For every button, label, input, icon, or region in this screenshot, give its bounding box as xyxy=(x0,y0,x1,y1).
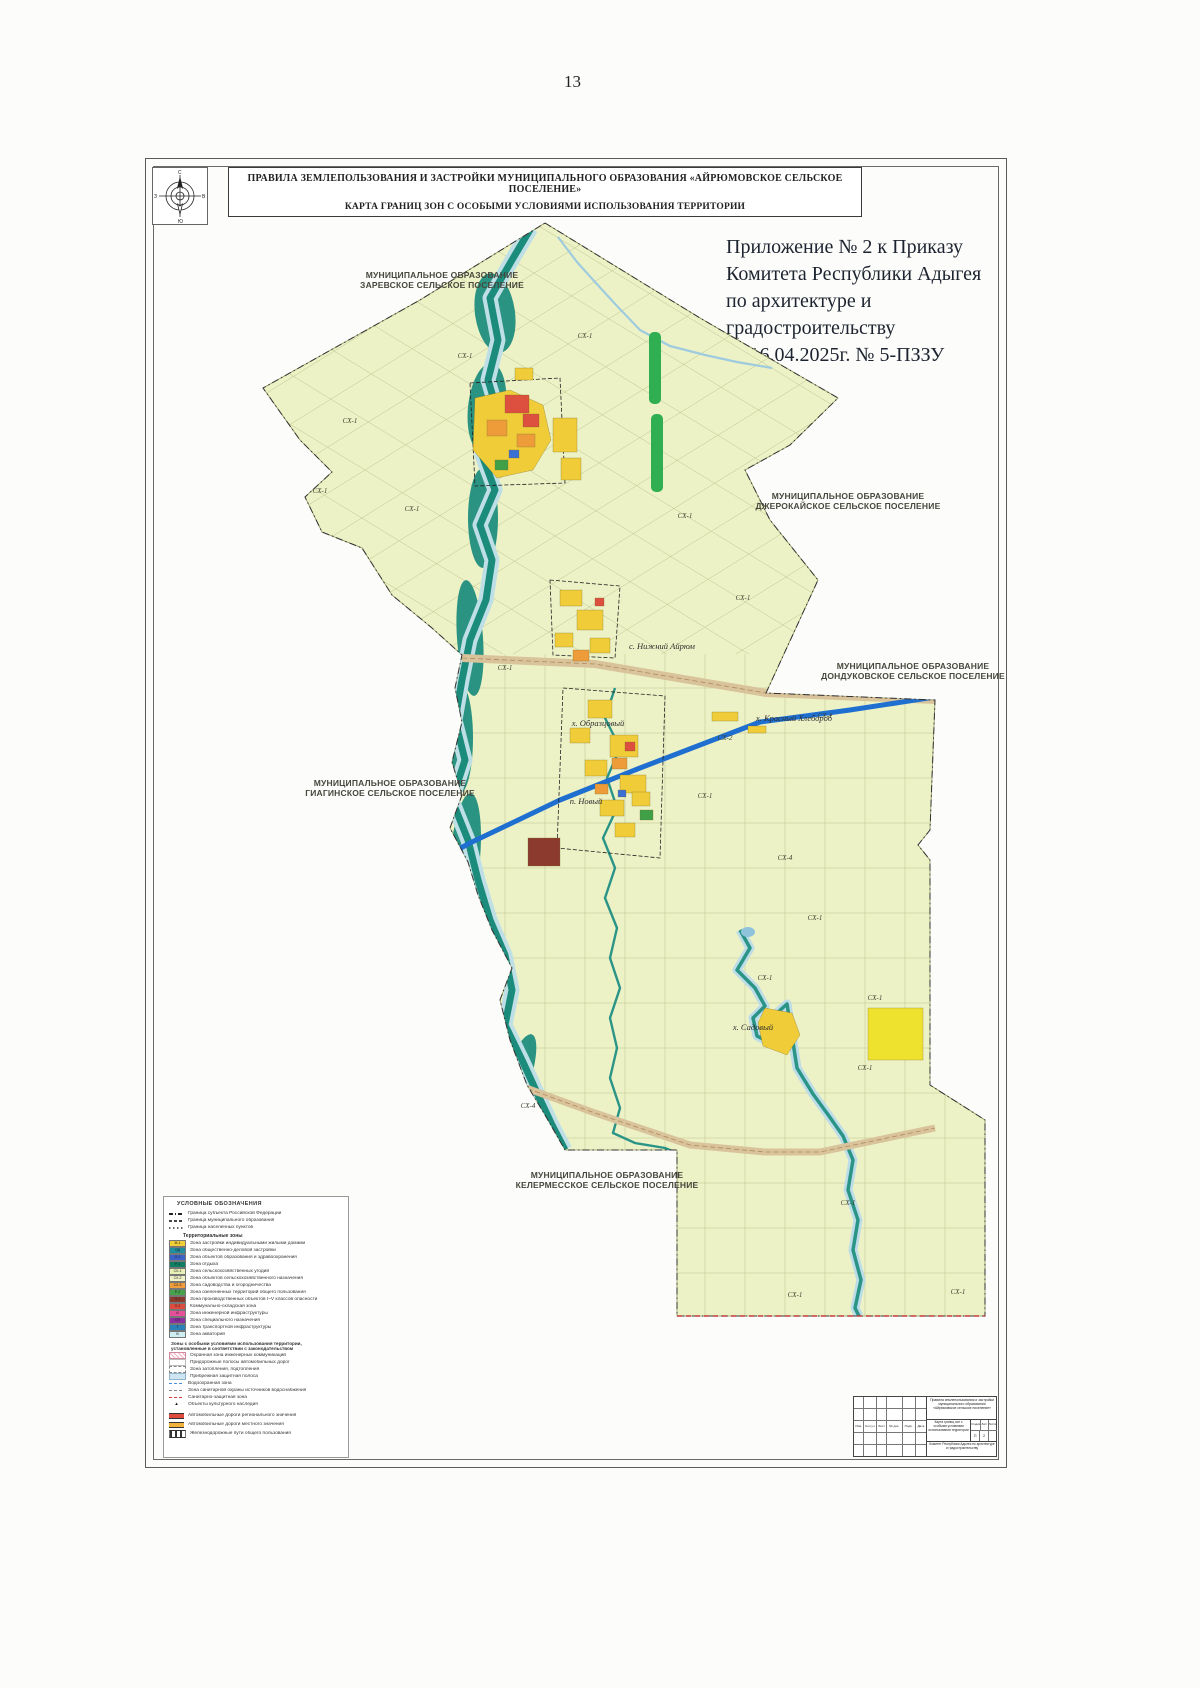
legend-swatch xyxy=(169,1218,184,1223)
legend-swatch xyxy=(169,1211,184,1216)
zone-code-label: СХ-1 xyxy=(343,417,358,425)
compass-rose: С Ю В З xyxy=(152,167,208,225)
legend-item: П-2Коммунально-складская зона xyxy=(169,1303,345,1310)
stamp-grid-cell xyxy=(877,1445,886,1456)
legend-item: Автомобильные дороги местного значения xyxy=(169,1420,345,1429)
pond xyxy=(741,927,755,937)
zone-code-label: СХ-1 xyxy=(788,1291,803,1299)
stamp-grid-cell xyxy=(854,1409,864,1420)
zone-code-label: СХ-1 xyxy=(808,914,823,922)
stamp-grid-cell xyxy=(903,1445,916,1456)
stamp-grid-row xyxy=(854,1409,926,1421)
zone-code-label: СХ-1 xyxy=(758,974,773,982)
legend-item: Р-1Зона отдыха xyxy=(169,1261,345,1268)
legend-item: Зона санитарной охраны источников водосн… xyxy=(169,1387,345,1394)
legend-item-label: Зона объектов образования и здравоохране… xyxy=(190,1255,297,1260)
zone-code-label: СХ-1 xyxy=(951,1288,966,1296)
stamp-stage-value: П xyxy=(971,1431,980,1442)
stamp-grid-cell: Дата xyxy=(916,1421,926,1432)
stamp-grid-cell xyxy=(887,1433,903,1444)
legend-swatch xyxy=(169,1422,184,1428)
zone-code-label: СХ-1 xyxy=(678,512,693,520)
legend-item-label: Прибрежная защитная полоса xyxy=(190,1374,258,1379)
legend-swatch xyxy=(169,1413,184,1419)
zone-code-label: СХ-1 xyxy=(313,487,328,495)
legend-item: Граница субъекта Российской Федерации xyxy=(169,1210,345,1217)
legend-swatch xyxy=(169,1395,184,1400)
settlement-label: х. Образцовый xyxy=(571,718,625,728)
settlement-label: п. Новый xyxy=(570,796,603,806)
legend-item-label: Зона сельскохозяйственных угодий xyxy=(190,1269,269,1274)
zone-code-label: СХ-2 xyxy=(718,734,733,742)
neighbor-label-dondukovskoe: МУНИЦИПАЛЬНОЕ ОБРАЗОВАНИЕДОНДУКОВСКОЕ СЕ… xyxy=(763,661,1063,681)
stamp-grid-cell xyxy=(887,1409,903,1420)
stamp-grid-cell xyxy=(916,1409,926,1420)
stamp-grid-cell: Кол.уч. xyxy=(864,1421,877,1432)
stamp-grid-row: Изм.Кол.уч.Лист№ док.Подп.Дата xyxy=(854,1421,926,1433)
legend-item: Граница населенных пунктов xyxy=(169,1224,345,1231)
stamp-grid-cell xyxy=(864,1409,877,1420)
zone-code-label: СХ-1 xyxy=(405,505,420,513)
legend-item-label: Зона акваторий xyxy=(190,1332,225,1337)
legend-item: ОДЗона общественно-деловой застройки xyxy=(169,1247,345,1254)
legend-item-label: Зона садоводства и огородничества xyxy=(190,1283,271,1288)
legend-item: О-1Зона объектов образования и здравоохр… xyxy=(169,1254,345,1261)
legend-item: П-1Зона производственных объектов I–V кл… xyxy=(169,1296,345,1303)
legend-item-label: Граница субъекта Российской Федерации xyxy=(188,1211,281,1216)
stamp-grid-cell xyxy=(864,1433,877,1444)
zone-code-label: СХ-1 xyxy=(858,1064,873,1072)
stamp-grid-cell xyxy=(887,1445,903,1456)
legend-swatch: И xyxy=(169,1310,186,1317)
legend-swatch: П-1 xyxy=(169,1296,186,1303)
legend-zones: Ж-1Зона застройки индивидуальными жилыми… xyxy=(169,1240,345,1338)
stamp-grid-cell: № док. xyxy=(887,1421,903,1432)
stamp-grid-row xyxy=(854,1433,926,1445)
settlement-label: с. Нижний Айрюм xyxy=(629,641,696,651)
legend-item: ТЗона транспортной инфраструктуры xyxy=(169,1324,345,1331)
legend-item: Граница муниципального образования xyxy=(169,1217,345,1224)
neighbor-label-kelermesskoe: МУНИЦИПАЛЬНОЕ ОБРАЗОВАНИЕКЕЛЕРМЕССКОЕ СЕ… xyxy=(457,1170,757,1190)
stamp-grid-cell xyxy=(854,1397,864,1408)
legend-item-label: Коммунально-складская зона xyxy=(190,1304,256,1309)
legend-item: Прибрежная защитная полоса xyxy=(169,1373,345,1380)
legend: УСЛОВНЫЕ ОБОЗНАЧЕНИЯ Граница субъекта Ро… xyxy=(163,1196,349,1458)
stamp-grid-cell xyxy=(903,1433,916,1444)
legend-swatch: Ж-1 xyxy=(169,1240,186,1247)
stamp-sheets-value xyxy=(989,1431,997,1442)
stamp-grid-row xyxy=(854,1445,926,1456)
legend-swatch: Р-2 xyxy=(169,1289,186,1296)
legend-item-label: Охранная зона инженерных коммуникаций xyxy=(190,1353,286,1358)
neighbor-label-zarevskoe: МУНИЦИПАЛЬНОЕ ОБРАЗОВАНИЕЗАРЕВСКОЕ СЕЛЬС… xyxy=(292,270,592,290)
stamp-grid-cell: Лист xyxy=(877,1421,886,1432)
legend-swatch xyxy=(169,1381,184,1386)
legend-swatch: СХ-2 xyxy=(169,1275,186,1282)
legend-swatch: СХ-1 xyxy=(169,1268,186,1275)
legend-item: ▴Объекты культурного наследия xyxy=(169,1401,345,1408)
legend-item: ВЗона акваторий xyxy=(169,1331,345,1338)
legend-item: СХ-3Зона садоводства и огородничества xyxy=(169,1282,345,1289)
stamp-grid-cell xyxy=(877,1433,886,1444)
stamp-sheet-value: 2 xyxy=(980,1431,989,1442)
stamp-right: Правила землепользования и застройки мун… xyxy=(927,1397,997,1456)
neighbor-label-dzherokayskoe: МУНИЦИПАЛЬНОЕ ОБРАЗОВАНИЕДЖЕРОКАЙСКОЕ СЕ… xyxy=(698,491,998,511)
legend-linear: Автомобильные дороги регионального значе… xyxy=(169,1411,345,1438)
legend-item: СНЗона специального назначения xyxy=(169,1317,345,1324)
legend-item: Ж-1Зона застройки индивидуальными жилыми… xyxy=(169,1240,345,1247)
zone-code-label: СХ-1 xyxy=(458,352,473,360)
zone-code-label: СХ-4 xyxy=(778,854,793,862)
map-title-box: ПРАВИЛА ЗЕМЛЕПОЛЬЗОВАНИЯ И ЗАСТРОЙКИ МУН… xyxy=(228,167,862,217)
legend-item-label: Санитарно-защитная зона xyxy=(188,1395,247,1400)
legend-boundaries: Граница субъекта Российской ФедерацииГра… xyxy=(169,1210,345,1231)
stamp-doc-title: Правила землепользования и застройки мун… xyxy=(927,1397,997,1420)
legend-swatch: О-1 xyxy=(169,1254,186,1261)
stamp-grid-row xyxy=(854,1397,926,1409)
legend-item-label: Зона затопления, подтопления xyxy=(190,1367,259,1372)
legend-swatch: Т xyxy=(169,1324,186,1331)
legend-item-label: Автомобильные дороги местного значения xyxy=(188,1422,284,1427)
stamp-grid-cell: Изм. xyxy=(854,1421,864,1432)
legend-swatch xyxy=(169,1366,186,1373)
legend-zones-header: Территориальные зоны xyxy=(183,1233,345,1239)
stamp-grid-cell xyxy=(916,1397,926,1408)
legend-item: Железнодорожные пути общего пользования xyxy=(169,1429,345,1438)
stamp-grid-cell xyxy=(916,1445,926,1456)
legend-swatch xyxy=(169,1373,186,1380)
title-stamp: Изм.Кол.уч.Лист№ док.Подп.Дата Правила з… xyxy=(853,1396,997,1457)
stamp-grid-cell xyxy=(877,1409,886,1420)
stamp-org: Комитет Республики Адыгея по архитектуре… xyxy=(927,1442,997,1456)
legend-item: ИЗона инженерной инфраструктуры xyxy=(169,1310,345,1317)
legend-item: СХ-1Зона сельскохозяйственных угодий xyxy=(169,1268,345,1275)
svg-text:З: З xyxy=(154,194,157,200)
map-title-line1: ПРАВИЛА ЗЕМЛЕПОЛЬЗОВАНИЯ И ЗАСТРОЙКИ МУН… xyxy=(229,173,861,195)
legend-item: Зона затопления, подтопления xyxy=(169,1366,345,1373)
legend-item-label: Зона санитарной охраны источников водосн… xyxy=(188,1388,306,1393)
svg-text:В: В xyxy=(202,194,206,200)
legend-item-label: Зона инженерной инфраструктуры xyxy=(190,1311,268,1316)
legend-item-label: Зона специального назначения xyxy=(190,1318,260,1323)
zoning-map: СХ-1СХ-1СХ-1СХ-1СХ-1СХ-1СХ-1СХ-1СХ-2СХ-1… xyxy=(165,218,1005,1323)
legend-item-label: Граница муниципального образования xyxy=(188,1218,274,1223)
stamp-grid-cell: Подп. xyxy=(903,1421,916,1432)
legend-item-label: Водоохранная зона xyxy=(188,1381,232,1386)
legend-item-label: Зона транспортной инфраструктуры xyxy=(190,1325,271,1330)
territory-polygon xyxy=(263,223,985,1316)
stamp-revision-grid: Изм.Кол.уч.Лист№ док.Подп.Дата xyxy=(854,1397,927,1456)
legend-swatch xyxy=(169,1225,184,1230)
legend-item-label: Зона производственных объектов I–V класс… xyxy=(190,1297,317,1302)
stamp-grid-cell xyxy=(864,1445,877,1456)
stamp-sheet-title: Карта границ зон с особыми условиями исп… xyxy=(927,1420,971,1441)
zone-code-label: СХ-1 xyxy=(868,994,883,1002)
legend-swatch xyxy=(169,1430,186,1438)
legend-swatch xyxy=(169,1388,184,1393)
legend-special-header: Зоны с особыми условиями использования т… xyxy=(171,1341,345,1351)
svg-text:С: С xyxy=(178,170,182,176)
legend-item-label: Зона объектов сельскохозяйственного назн… xyxy=(190,1276,303,1281)
legend-swatch xyxy=(169,1359,186,1366)
zone-code-label: СХ-1 xyxy=(841,1199,856,1207)
stamp-grid-cell xyxy=(854,1445,864,1456)
legend-item-label: Объекты культурного наследия xyxy=(188,1402,258,1407)
stamp-stage-table: Стадия Лист Листов П 2 xyxy=(971,1420,997,1441)
legend-item: Придорожные полосы автомобильных дорог xyxy=(169,1359,345,1366)
zone-code-label: СХ-1 xyxy=(736,594,751,602)
zone-code-label: СХ-1 xyxy=(578,332,593,340)
legend-item: Автомобильные дороги регионального значе… xyxy=(169,1411,345,1420)
legend-item-label: Зона отдыха xyxy=(190,1262,218,1267)
legend-swatch: СН xyxy=(169,1317,186,1324)
legend-item-label: Автомобильные дороги регионального значе… xyxy=(188,1413,296,1418)
legend-item: Водоохранная зона xyxy=(169,1380,345,1387)
legend-swatch: СХ-3 xyxy=(169,1282,186,1289)
legend-item: Р-2Зона озелененных территорий общего по… xyxy=(169,1289,345,1296)
legend-swatch xyxy=(169,1352,186,1359)
stamp-grid-cell xyxy=(877,1397,886,1408)
zone-code-label: СХ-1 xyxy=(498,664,513,672)
map-title-line2: КАРТА ГРАНИЦ ЗОН С ОСОБЫМИ УСЛОВИЯМИ ИСП… xyxy=(229,202,861,212)
legend-item: Санитарно-защитная зона xyxy=(169,1394,345,1401)
stamp-grid-cell xyxy=(903,1397,916,1408)
zone-code-label: СХ-1 xyxy=(698,792,713,800)
legend-swatch: ОД xyxy=(169,1247,186,1254)
legend-title: УСЛОВНЫЕ ОБОЗНАЧЕНИЯ xyxy=(177,1201,345,1207)
stamp-grid-cell xyxy=(864,1397,877,1408)
legend-swatch: Р-1 xyxy=(169,1261,186,1268)
stamp-grid-cell xyxy=(916,1433,926,1444)
legend-swatch: В xyxy=(169,1331,186,1338)
settlement-label: х. Садовый xyxy=(732,1022,774,1032)
legend-item: СХ-2Зона объектов сельскохозяйственного … xyxy=(169,1275,345,1282)
neighbor-label-giaginskoe: МУНИЦИПАЛЬНОЕ ОБРАЗОВАНИЕГИАГИНСКОЕ СЕЛЬ… xyxy=(240,778,540,798)
legend-item-label: Зона озелененных территорий общего польз… xyxy=(190,1290,306,1295)
zone-code-label: СХ-4 xyxy=(521,1102,536,1110)
legend-item-label: Зона застройки индивидуальными жилыми до… xyxy=(190,1241,305,1246)
legend-item-label: Зона общественно-деловой застройки xyxy=(190,1248,276,1253)
legend-item: Охранная зона инженерных коммуникаций xyxy=(169,1352,345,1359)
legend-swatch: ▴ xyxy=(169,1402,184,1407)
legend-special: Охранная зона инженерных коммуникацийПри… xyxy=(169,1352,345,1408)
stamp-grid-cell xyxy=(887,1397,903,1408)
legend-item-label: Железнодорожные пути общего пользования xyxy=(190,1431,291,1436)
legend-item-label: Граница населенных пунктов xyxy=(188,1225,253,1230)
settlement-label: х. Красный Хлебороб xyxy=(755,713,833,723)
legend-swatch: П-2 xyxy=(169,1303,186,1310)
page-number: 13 xyxy=(0,72,1145,92)
compass-icon: С Ю В З xyxy=(153,168,207,224)
stamp-grid-cell xyxy=(903,1409,916,1420)
legend-item-label: Придорожные полосы автомобильных дорог xyxy=(190,1360,290,1365)
stamp-grid-cell xyxy=(854,1433,864,1444)
